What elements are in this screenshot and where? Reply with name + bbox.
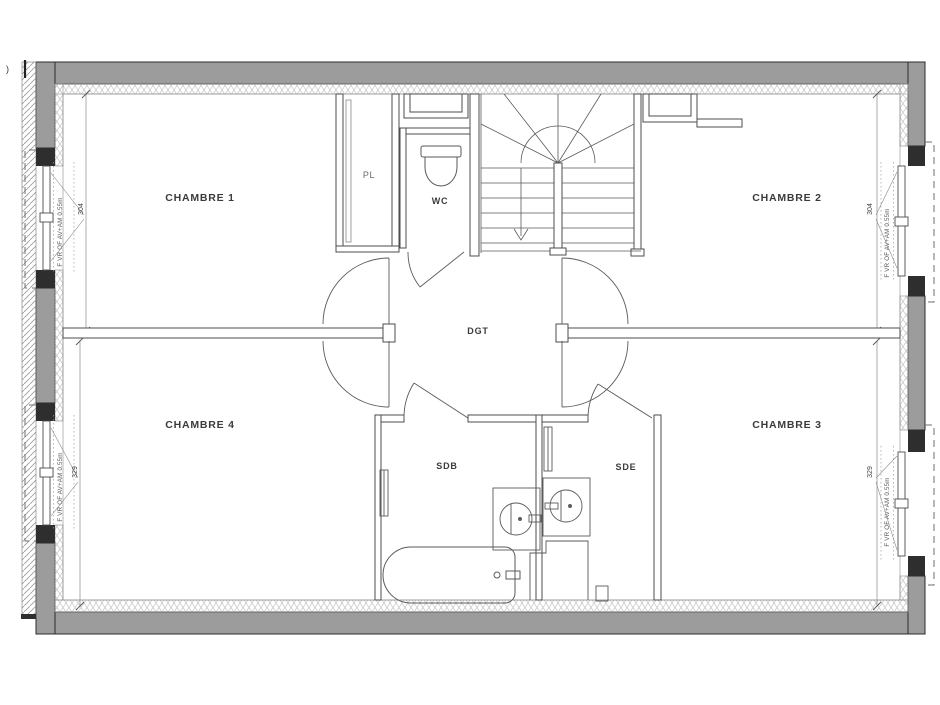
sdb-vanity <box>493 488 541 550</box>
insulation-bands <box>55 84 908 612</box>
room-label-dgt: DGT <box>467 326 488 336</box>
window-spec-label: F VR OF AV+AM 0.55m <box>57 452 64 521</box>
exterior-cladding-strip <box>21 62 36 619</box>
window-dimension: 304 <box>78 203 85 215</box>
exterior-walls <box>36 62 925 634</box>
room-label-sdb: SDB <box>436 461 457 471</box>
room-label-sde: SDE <box>616 462 637 472</box>
room-label-pl: PL <box>363 170 375 180</box>
sde-vanity <box>543 478 590 536</box>
room-labels: CHAMBRE 1 CHAMBRE 2 CHAMBRE 3 CHAMBRE 4 … <box>165 170 822 472</box>
partition-walls <box>63 94 900 600</box>
window-spec-label: F VR OF AV+AM 0.55m <box>57 197 64 266</box>
interior-boundary <box>63 94 900 600</box>
room-label-chambre3: CHAMBRE 3 <box>752 419 822 431</box>
room-label-wc: WC <box>432 196 449 206</box>
window-dimension: 329 <box>867 466 874 478</box>
toilet <box>421 146 461 186</box>
bathtub <box>383 547 520 603</box>
window-spec-label: F VR OF AV+AM 0.55m <box>884 208 891 277</box>
staircase <box>481 94 641 255</box>
room-label-chambre4: CHAMBRE 4 <box>165 419 235 431</box>
window-dimension: 304 <box>867 203 874 215</box>
window-piers <box>36 146 925 576</box>
closet-rail <box>346 100 351 242</box>
margin-mark: ) <box>6 64 9 74</box>
window-dimension: 329 <box>72 466 79 478</box>
room-label-chambre2: CHAMBRE 2 <box>752 192 822 204</box>
radiators <box>380 427 552 516</box>
floor-plan: F VR OF AV+AM 0.55m 304 F VR OF AV+AM 0.… <box>0 0 940 705</box>
room-label-chambre1: CHAMBRE 1 <box>165 192 235 204</box>
